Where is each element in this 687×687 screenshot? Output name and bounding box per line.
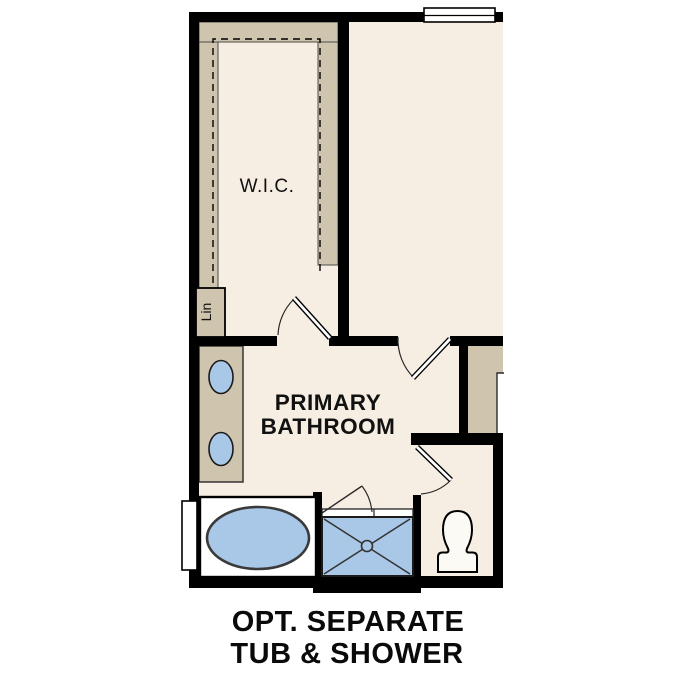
wall-toilet-top	[411, 433, 503, 445]
wall-toilet-left	[413, 495, 421, 588]
wall-bath-top-right	[450, 336, 503, 346]
wall-closet-left	[459, 346, 468, 433]
tub	[207, 507, 309, 569]
wall-wic-bedroom	[338, 22, 349, 346]
bathroom-label-line1: PRIMARY	[275, 390, 381, 415]
wall-bath-top-mid	[329, 336, 398, 346]
wall-bottom-shower	[313, 576, 421, 593]
floor-plan-page: W.I.C. Lin PRIMARY BATHROOM OPT. SEPARAT…	[0, 0, 687, 687]
wic-label: W.I.C.	[240, 176, 295, 197]
caption-line2: TUB & SHOWER	[230, 638, 463, 670]
tub-window	[182, 501, 197, 570]
wic-shelf-left	[199, 42, 218, 288]
wall-right	[493, 433, 503, 588]
bedroom-closet-opening	[497, 373, 504, 433]
linen-label: Lin	[198, 303, 214, 322]
vanity-sink-2	[209, 433, 233, 466]
vanity-sink-1	[209, 361, 233, 394]
shower-glass	[322, 509, 413, 517]
closet-opening-fill	[497, 373, 504, 433]
caption: OPT. SEPARATE TUB & SHOWER	[230, 606, 464, 670]
wic-shelf-right	[318, 42, 338, 265]
bathroom-label-line2: BATHROOM	[261, 414, 396, 439]
shower-drain	[362, 541, 373, 552]
caption-line1: OPT. SEPARATE	[232, 606, 465, 638]
floor-plan: W.I.C. Lin PRIMARY BATHROOM OPT. SEPARAT…	[0, 0, 687, 687]
